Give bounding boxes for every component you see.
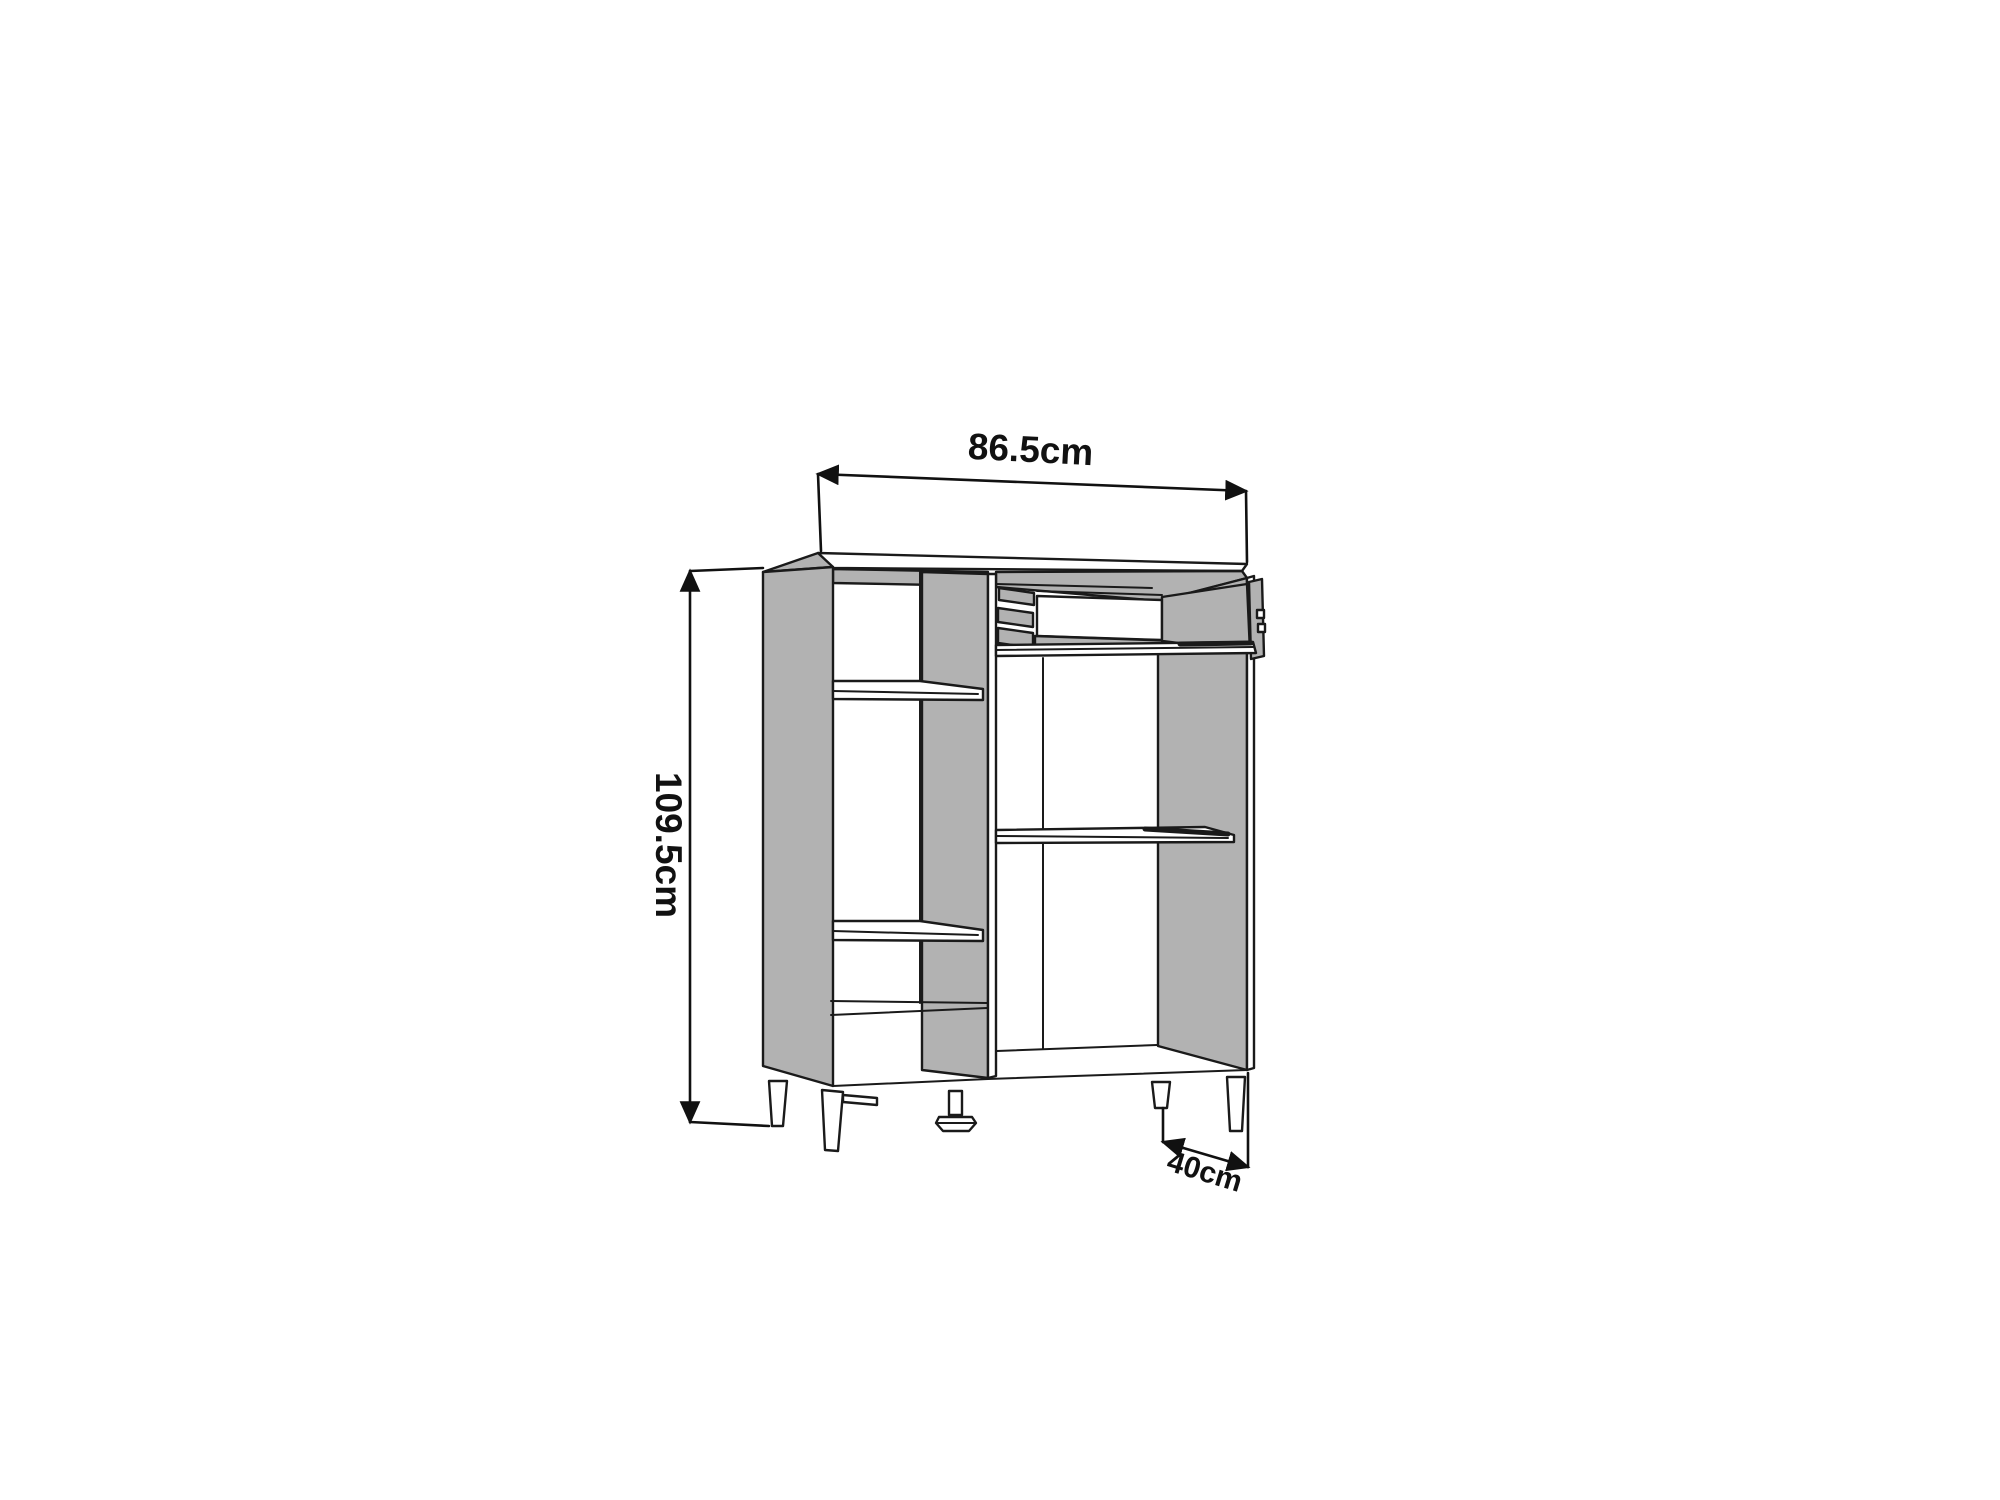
top-panel <box>818 553 1247 571</box>
width-dimension-label: 86.5cm <box>967 426 1094 474</box>
drawer-rail-2 <box>998 608 1033 627</box>
cabinet-body <box>763 553 1265 1151</box>
flap-hinge-notch-2 <box>1258 624 1265 632</box>
cabinet-technical-drawing: 86.5cm 109.5cm 40cm <box>0 0 2000 1500</box>
furniture-dimension-diagram: 86.5cm 109.5cm 40cm <box>0 0 2000 1500</box>
leg-rear-left <box>769 1081 787 1126</box>
front-rail-bar <box>843 1095 877 1105</box>
width-dimension: 86.5cm <box>818 426 1247 562</box>
right-middle-shelf <box>996 827 1234 843</box>
legs <box>769 1077 1245 1151</box>
leg-front-right <box>1227 1077 1245 1131</box>
width-dimension-line <box>818 474 1246 491</box>
flap-hinge-notch-1 <box>1257 610 1264 618</box>
left-side-panel <box>763 567 833 1086</box>
width-extension-right <box>1246 491 1247 562</box>
leg-front-left <box>822 1090 843 1151</box>
height-dimension: 109.5cm <box>648 568 769 1126</box>
leg-rear-right <box>1152 1082 1170 1108</box>
height-dimension-label: 109.5cm <box>648 772 689 918</box>
drawer-back <box>1037 596 1162 640</box>
height-tick-top <box>690 568 763 571</box>
leg-middle-adjustable <box>936 1091 976 1131</box>
width-extension-left <box>818 474 821 551</box>
height-tick-bottom <box>690 1122 769 1126</box>
